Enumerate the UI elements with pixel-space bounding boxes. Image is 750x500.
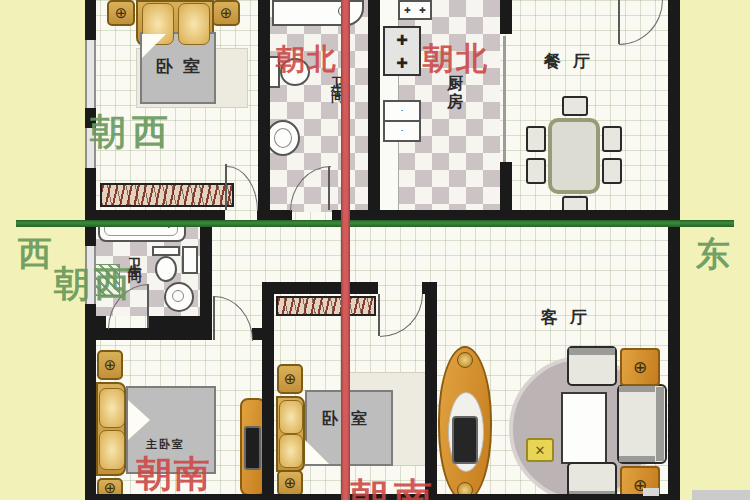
cross-icon: ✕ <box>535 443 546 458</box>
pillow <box>279 434 303 468</box>
pillow <box>279 400 303 434</box>
wall-bathroom-middle-right <box>200 222 212 328</box>
compass-east-label: 东 <box>696 232 730 278</box>
bath-cabinet <box>182 246 198 274</box>
bathtub <box>272 0 364 26</box>
east-west-axis-line <box>16 220 734 227</box>
tv <box>244 426 261 470</box>
north-south-axis-line <box>341 0 350 500</box>
facing-north-label-kitchen: 朝北 <box>423 38 489 80</box>
wall-bedroom-bottom-top <box>274 282 378 294</box>
nightstand: ⊕ <box>212 0 240 26</box>
window <box>85 40 96 108</box>
wall-bathroom-middle-bottom <box>96 316 106 328</box>
pillow <box>99 430 125 470</box>
dining-chair <box>562 96 588 116</box>
pillow <box>178 3 210 45</box>
wall-master-top <box>85 328 212 340</box>
console-knob <box>457 352 473 368</box>
sofa-armrest <box>619 456 655 462</box>
nightstand: ⊕ <box>107 0 135 26</box>
screw-icon: ⊕ <box>214 2 238 24</box>
pillow <box>99 388 125 428</box>
facing-north-label-bathroom: 朝北 <box>276 40 338 80</box>
wall-kitchen-dining-top <box>500 0 512 34</box>
facing-west-label-top: 朝西 <box>90 108 174 157</box>
facing-south-label-bedroom: 朝南 <box>350 472 438 500</box>
wardrobe <box>100 183 234 207</box>
dining-chair <box>526 158 546 184</box>
wardrobe <box>276 296 376 316</box>
coffee-table <box>561 392 607 464</box>
facing-south-label-master: 朝南 <box>136 450 212 499</box>
burner-icon: ✚ <box>404 6 411 15</box>
floor-plan: ⊕ ⊕ 卧室 卫生间 ✚✚ ✚✚ · · 厨房 餐厅 ✓ 卫生间 ⊕ <box>0 0 750 500</box>
watermark-strip <box>692 490 750 500</box>
blanket-fold <box>128 400 150 440</box>
wall-bedroom-bottom-top <box>422 282 437 294</box>
nightstand: ⊕ <box>97 350 123 380</box>
sliding-door-track <box>503 36 506 162</box>
room-label-living: 客厅 <box>541 306 599 329</box>
sink-basin <box>274 128 292 148</box>
dining-chair <box>602 126 622 152</box>
wall-bathroom-middle-bottom <box>148 316 200 328</box>
sofa-back <box>656 387 664 461</box>
screw-icon: ⊕ <box>99 352 121 378</box>
burner-icon: ✚ <box>396 32 408 48</box>
watermark-mark <box>643 488 659 496</box>
wall-living-left <box>425 294 437 500</box>
room-label-bedroom-bottom: 卧室 <box>314 409 388 430</box>
toilet-bowl <box>155 256 177 282</box>
facing-west-label-middle: 朝西 <box>54 260 134 309</box>
kitchen-cabinet: · · <box>383 100 421 142</box>
nightstand: ⊕ <box>277 470 303 496</box>
side-table: ⊕ <box>620 348 660 386</box>
dining-chair <box>526 126 546 152</box>
armchair-back <box>569 348 615 355</box>
nightstand: ⊕ <box>277 364 303 394</box>
burner-icon: ✚ <box>419 6 426 15</box>
toilet-tank <box>152 246 180 256</box>
sofa-armrest <box>619 386 655 392</box>
floor-cushion: ✕ <box>526 438 554 462</box>
burner-icon: ✚ <box>396 55 408 71</box>
screw-icon: ⊕ <box>279 472 301 494</box>
screw-icon: ⊕ <box>633 357 647 377</box>
wall-bathroom-kitchen <box>368 0 380 212</box>
wall-right <box>668 0 680 500</box>
dining-chair <box>602 158 622 184</box>
screw-icon: ⊕ <box>279 366 301 392</box>
wall-bedroom-bathroom <box>258 0 270 212</box>
screw-icon: ⊕ <box>109 2 133 24</box>
kitchen-sink: ✚✚ <box>398 0 432 20</box>
room-label-bedroom-top: 卧室 <box>146 55 220 78</box>
compass-west-label: 西 <box>18 231 52 277</box>
sink-basin <box>172 290 184 302</box>
blanket-fold <box>305 440 329 464</box>
stove: ✚✚ <box>383 26 421 76</box>
tv <box>452 416 478 464</box>
dining-table <box>548 118 600 194</box>
room-label-dining: 餐厅 <box>544 50 602 73</box>
wall-bedroom-bottom-left <box>262 282 274 500</box>
